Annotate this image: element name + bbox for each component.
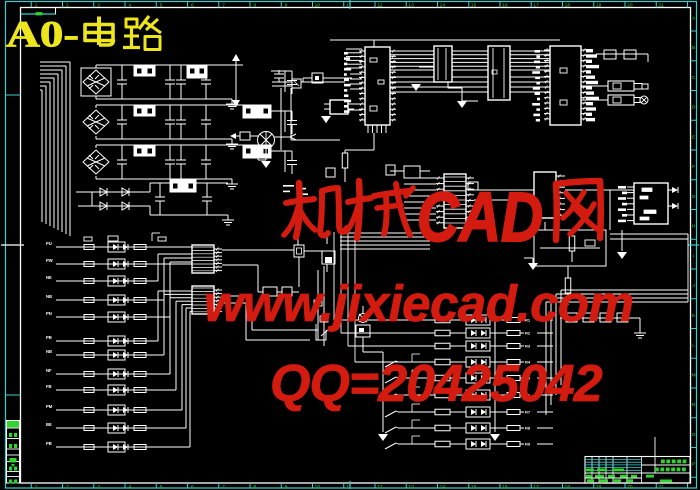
svg-text:PU: PU bbox=[46, 241, 52, 246]
svg-text:21: 21 bbox=[658, 484, 664, 490]
svg-text:10: 10 bbox=[315, 3, 321, 9]
svg-text:5: 5 bbox=[160, 484, 163, 490]
svg-text:R3: R3 bbox=[525, 344, 531, 349]
svg-text:N: N bbox=[692, 402, 696, 408]
svg-text:10: 10 bbox=[315, 484, 321, 490]
svg-text:R8: R8 bbox=[525, 426, 531, 431]
svg-text:G: G bbox=[692, 194, 696, 200]
svg-text:NB: NB bbox=[46, 349, 52, 354]
svg-text:FB: FB bbox=[46, 384, 52, 389]
svg-text:A0-: A0- bbox=[6, 15, 79, 56]
svg-text:CAD: CAD bbox=[417, 178, 543, 256]
svg-text:12: 12 bbox=[377, 3, 383, 9]
svg-text:18: 18 bbox=[565, 3, 571, 9]
svg-text:PW: PW bbox=[46, 258, 53, 263]
svg-text:3: 3 bbox=[97, 484, 100, 490]
svg-text:17: 17 bbox=[533, 3, 539, 9]
svg-text:15: 15 bbox=[471, 484, 477, 490]
svg-text:C: C bbox=[692, 75, 696, 81]
svg-text:P: P bbox=[692, 462, 695, 468]
svg-text:14: 14 bbox=[440, 3, 446, 9]
svg-text:7: 7 bbox=[222, 484, 225, 490]
svg-text:18: 18 bbox=[565, 484, 571, 490]
svg-text:5: 5 bbox=[160, 3, 163, 9]
svg-text:11: 11 bbox=[346, 3, 351, 9]
svg-text:4: 4 bbox=[129, 484, 132, 490]
svg-text:NE: NE bbox=[46, 275, 52, 280]
svg-text:F: F bbox=[692, 164, 695, 170]
svg-text:8: 8 bbox=[254, 484, 257, 490]
svg-text:17: 17 bbox=[533, 484, 539, 490]
svg-text:2: 2 bbox=[66, 3, 69, 9]
svg-text:16: 16 bbox=[502, 484, 508, 490]
svg-text:PB: PB bbox=[46, 335, 52, 340]
svg-text:9: 9 bbox=[285, 3, 288, 9]
svg-text:O: O bbox=[692, 432, 696, 438]
svg-text:9: 9 bbox=[285, 484, 288, 490]
svg-text:M: M bbox=[692, 372, 696, 378]
svg-text:13: 13 bbox=[408, 3, 414, 9]
svg-text:16: 16 bbox=[502, 3, 508, 9]
svg-text:19: 19 bbox=[596, 484, 602, 490]
svg-text:3: 3 bbox=[97, 3, 100, 9]
svg-text:4: 4 bbox=[129, 3, 132, 9]
svg-text:21: 21 bbox=[658, 3, 664, 9]
svg-text:NB: NB bbox=[46, 294, 52, 299]
svg-text:12: 12 bbox=[377, 484, 383, 490]
svg-text:7: 7 bbox=[222, 3, 225, 9]
svg-text:www.jixiecad.com: www.jixiecad.com bbox=[204, 275, 633, 332]
svg-text:2: 2 bbox=[66, 484, 69, 490]
svg-text:6: 6 bbox=[191, 484, 194, 490]
svg-text:R9: R9 bbox=[525, 442, 531, 447]
svg-text:15: 15 bbox=[471, 3, 477, 9]
svg-text:E: E bbox=[692, 134, 695, 140]
svg-text:8: 8 bbox=[254, 3, 257, 9]
svg-text:NF: NF bbox=[46, 368, 52, 373]
svg-text:B: B bbox=[692, 45, 695, 51]
svg-text:QQ=20425042: QQ=20425042 bbox=[270, 355, 603, 413]
svg-text:11: 11 bbox=[346, 484, 351, 490]
svg-text:PN: PN bbox=[46, 311, 52, 316]
svg-text:13: 13 bbox=[408, 484, 414, 490]
svg-text:20: 20 bbox=[627, 3, 633, 9]
svg-text:14: 14 bbox=[440, 484, 446, 490]
svg-text:1: 1 bbox=[35, 484, 38, 490]
svg-text:6: 6 bbox=[191, 3, 194, 9]
svg-text:BE: BE bbox=[46, 422, 52, 427]
svg-text:L: L bbox=[692, 343, 695, 349]
svg-text:PM: PM bbox=[46, 404, 53, 409]
svg-text:D: D bbox=[692, 105, 696, 111]
svg-text:I: I bbox=[693, 253, 694, 259]
svg-text:PB: PB bbox=[46, 441, 52, 446]
svg-text:20: 20 bbox=[627, 484, 633, 490]
svg-text:19: 19 bbox=[596, 3, 602, 9]
svg-text:H: H bbox=[692, 224, 696, 230]
